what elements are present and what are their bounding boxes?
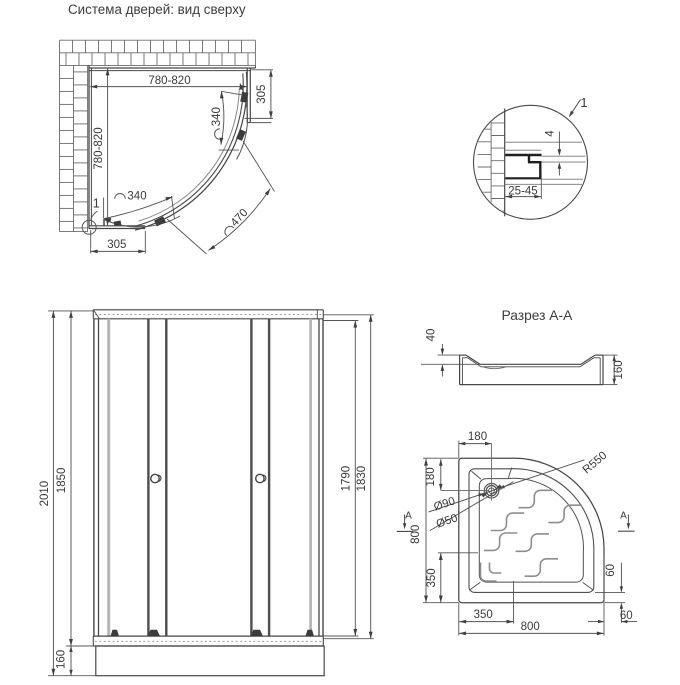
svg-text:350: 350 xyxy=(474,609,493,621)
svg-text:340: 340 xyxy=(127,190,146,202)
svg-text:2010: 2010 xyxy=(39,481,51,507)
svg-text:800: 800 xyxy=(410,525,422,544)
svg-text:305: 305 xyxy=(107,239,126,251)
svg-text:160: 160 xyxy=(613,360,625,379)
svg-text:1830: 1830 xyxy=(356,466,368,492)
svg-text:А: А xyxy=(405,511,412,522)
svg-text:Система дверей: вид сверху: Система дверей: вид сверху xyxy=(68,2,246,17)
svg-text:340: 340 xyxy=(211,107,223,126)
svg-text:160: 160 xyxy=(55,650,67,669)
svg-text:Разрез А-А: Разрез А-А xyxy=(502,308,574,323)
svg-text:180: 180 xyxy=(425,467,437,486)
svg-text:800: 800 xyxy=(521,621,540,633)
svg-text:180: 180 xyxy=(468,431,487,443)
svg-text:60: 60 xyxy=(620,610,633,622)
svg-text:305: 305 xyxy=(256,85,268,104)
svg-text:780-820: 780-820 xyxy=(93,127,105,169)
svg-text:25-45: 25-45 xyxy=(508,185,537,197)
svg-text:350: 350 xyxy=(426,568,438,587)
svg-text:А: А xyxy=(620,511,627,522)
svg-text:1790: 1790 xyxy=(340,466,352,492)
svg-text:60: 60 xyxy=(605,564,617,577)
svg-text:780-820: 780-820 xyxy=(148,75,190,87)
svg-text:1: 1 xyxy=(580,95,587,110)
svg-text:40: 40 xyxy=(426,329,438,342)
svg-text:4: 4 xyxy=(544,130,556,137)
svg-text:1850: 1850 xyxy=(56,468,68,494)
svg-text:1: 1 xyxy=(93,196,100,211)
